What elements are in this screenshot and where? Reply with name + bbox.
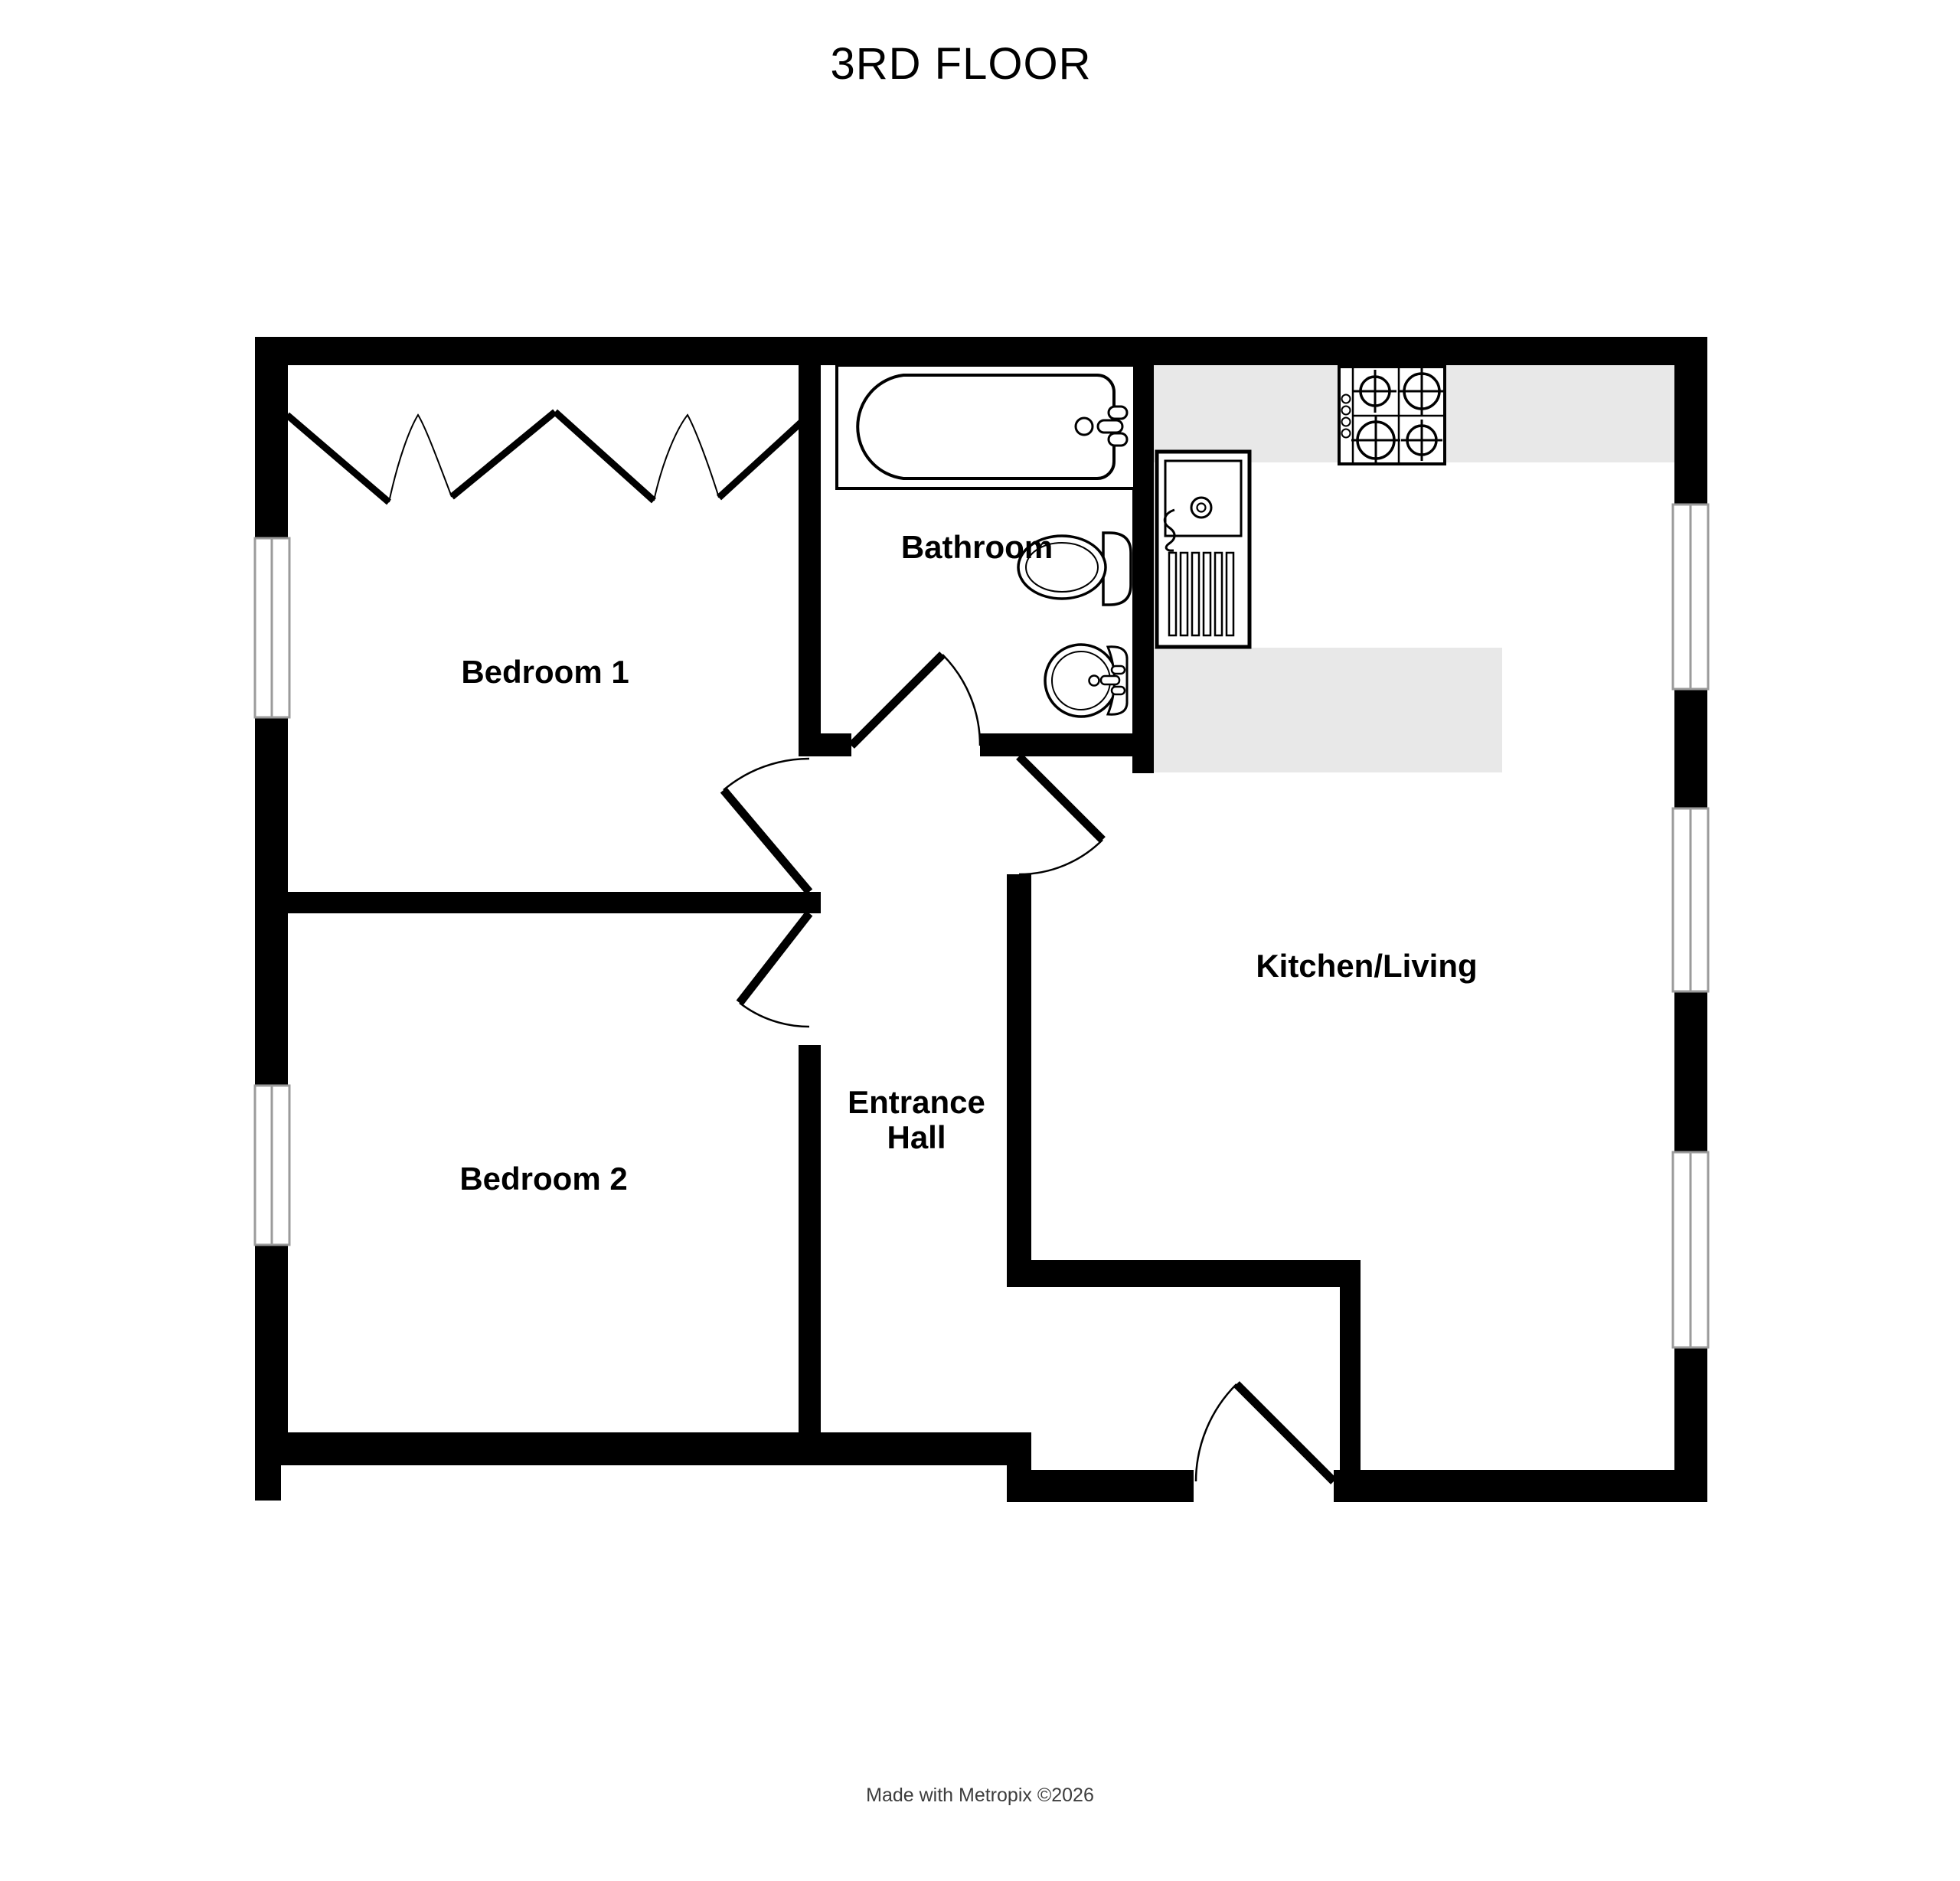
wall-exterior-left-foot bbox=[255, 1465, 281, 1501]
drainer-bar-4 bbox=[1204, 553, 1210, 635]
sink-drain-inner bbox=[1197, 504, 1206, 512]
wall-exterior-right-b bbox=[1674, 689, 1707, 808]
window-kitchen-right-lower bbox=[1673, 1152, 1708, 1347]
wall-bathroom-bottom-right bbox=[980, 733, 1152, 756]
label-entrance-hall-line2: Hall bbox=[887, 1119, 946, 1155]
basin-drain bbox=[1089, 676, 1099, 686]
window-kitchen-right-upper bbox=[1673, 505, 1708, 689]
label-bedroom-2: Bedroom 2 bbox=[459, 1161, 627, 1197]
wall-exterior-bottom-right-a bbox=[1007, 1470, 1194, 1502]
kitchen-sink-icon bbox=[1157, 452, 1249, 647]
drainer-bar-6 bbox=[1227, 553, 1233, 635]
wall-exterior-left-upper bbox=[255, 337, 288, 538]
bathtub-tap-handle-top bbox=[1109, 407, 1127, 419]
counter-lower-block bbox=[1154, 648, 1502, 772]
drainer-bar-3 bbox=[1192, 553, 1199, 635]
basin-tap-handle-top bbox=[1112, 666, 1125, 674]
window-kitchen-right-middle bbox=[1673, 808, 1708, 991]
wall-kitchen-step-vertical bbox=[1340, 1287, 1361, 1502]
wall-exterior-left-lower bbox=[255, 1245, 288, 1465]
basin-tap-handle-bottom bbox=[1112, 687, 1125, 694]
wall-hall-right bbox=[1007, 874, 1031, 1287]
wash-basin-icon bbox=[1045, 645, 1127, 717]
wall-exterior-right-c bbox=[1674, 991, 1707, 1152]
gas-hob-icon bbox=[1339, 367, 1445, 464]
page-background bbox=[0, 0, 1960, 1881]
wall-bathroom-bottom-stub-left bbox=[799, 733, 851, 756]
window-bedroom1-left bbox=[255, 538, 289, 717]
label-entrance-hall-line1: Entrance bbox=[848, 1084, 985, 1120]
floor-plan-page: 3RD FLOOR bbox=[0, 0, 1960, 1881]
wall-exterior-bottom-right-b bbox=[1334, 1470, 1707, 1502]
drainer-bar-2 bbox=[1181, 553, 1187, 635]
bathtub-tap-handle-bottom bbox=[1109, 433, 1127, 446]
wall-bedroom2-right bbox=[799, 1045, 821, 1465]
label-bathroom: Bathroom bbox=[901, 529, 1053, 565]
wall-kitchen-step-horizontal bbox=[1007, 1260, 1361, 1287]
wall-exterior-right-d bbox=[1674, 1347, 1707, 1502]
toilet-cistern bbox=[1103, 533, 1131, 605]
floor-plan-canvas: 3RD FLOOR bbox=[0, 0, 1960, 1881]
wall-exterior-bottom-left bbox=[255, 1432, 1031, 1465]
bathtub-drain bbox=[1076, 418, 1093, 435]
label-bedroom-1: Bedroom 1 bbox=[461, 654, 629, 690]
wall-exterior-top bbox=[255, 337, 1707, 365]
drainer-bar-1 bbox=[1169, 553, 1176, 635]
bathtub-spout bbox=[1098, 420, 1122, 433]
window-bedroom2-left bbox=[255, 1086, 289, 1245]
drainer-bar-5 bbox=[1215, 553, 1222, 635]
label-kitchen-living: Kitchen/Living bbox=[1256, 948, 1477, 984]
wall-bedroom-divider bbox=[255, 892, 821, 913]
wall-exterior-right-a bbox=[1674, 337, 1707, 505]
bathtub-icon bbox=[837, 365, 1135, 488]
basin-spout bbox=[1101, 676, 1119, 684]
page-title: 3RD FLOOR bbox=[831, 39, 1092, 89]
footer-credit: Made with Metropix ©2026 bbox=[866, 1785, 1094, 1806]
